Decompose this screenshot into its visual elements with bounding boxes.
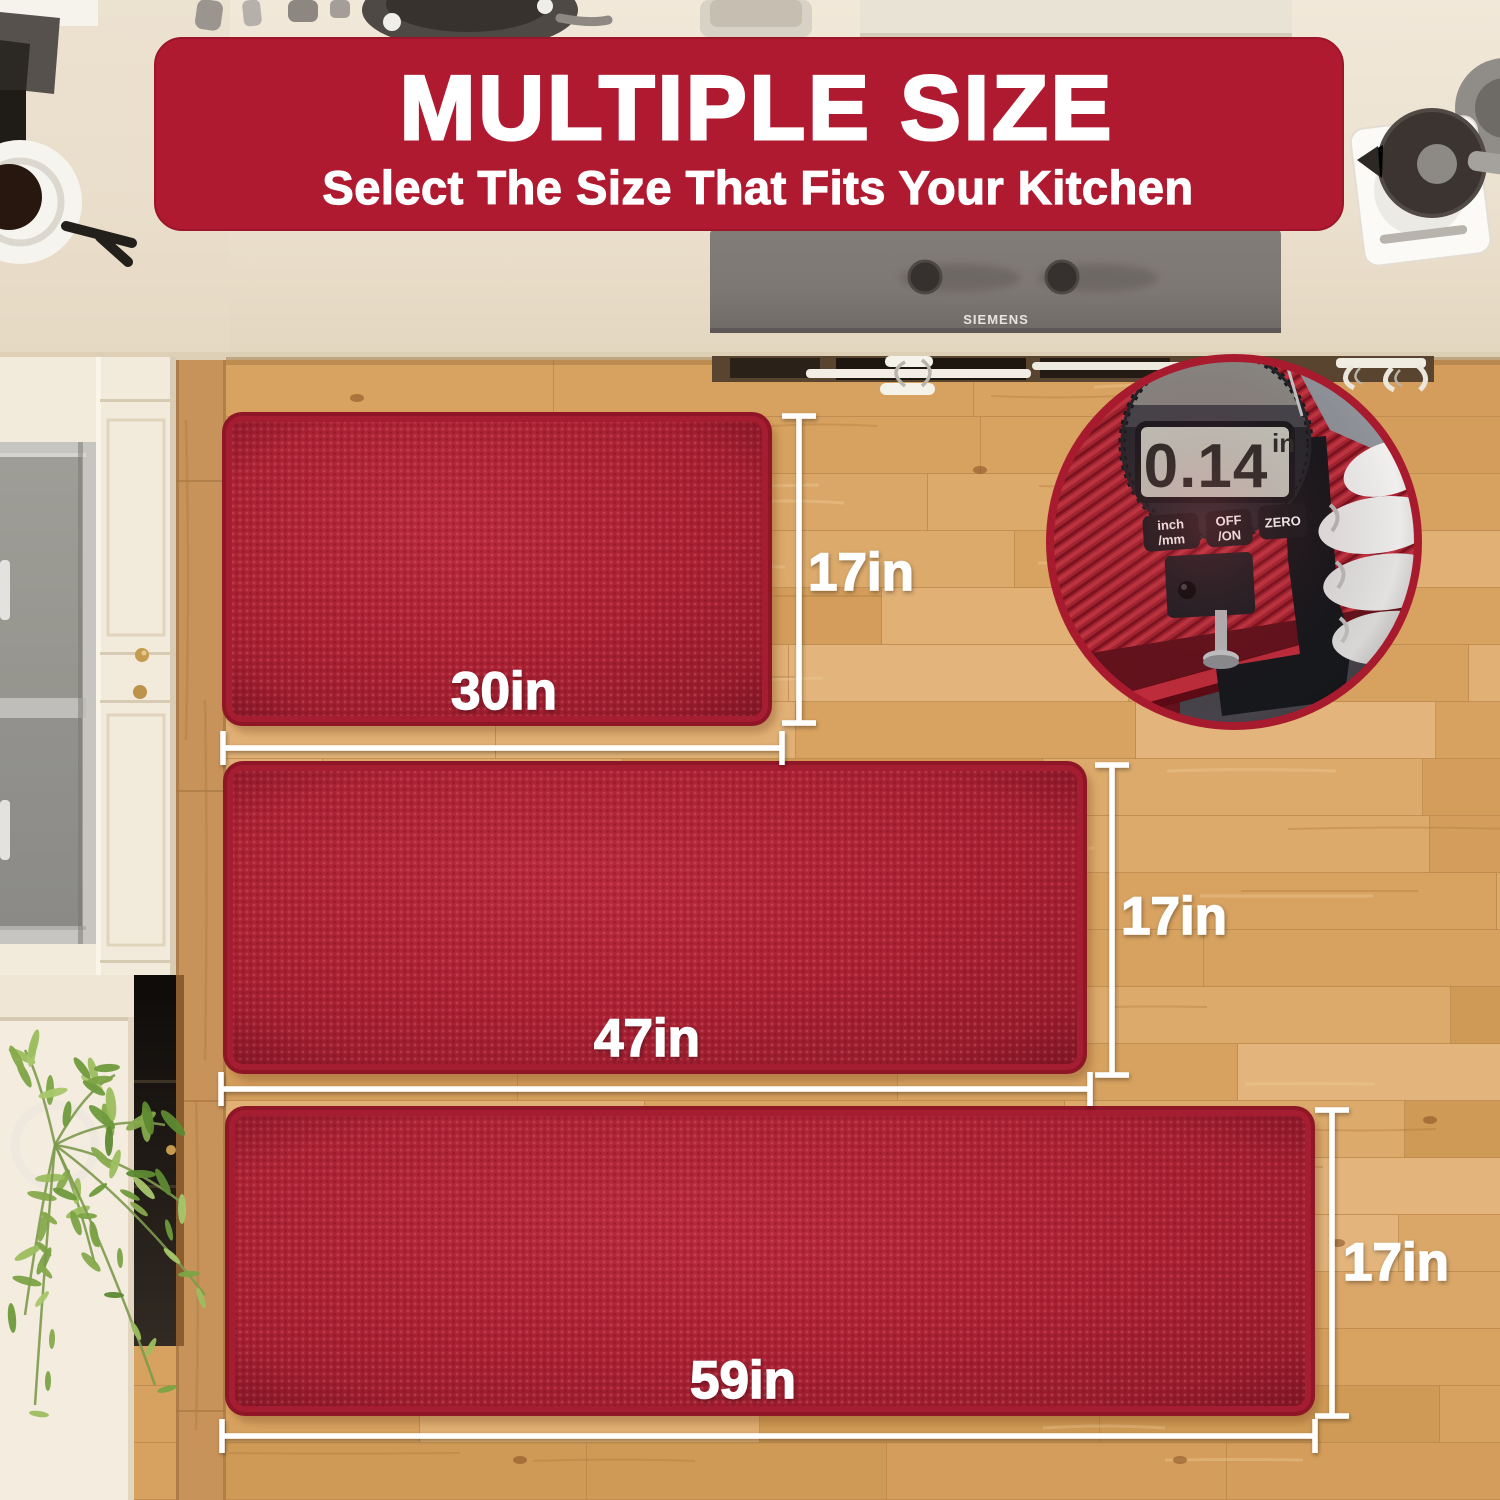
svg-text:30in: 30in [451, 662, 557, 721]
svg-text:17in: 17in [1121, 887, 1227, 946]
svg-text:47in: 47in [594, 1009, 700, 1068]
svg-text:MULTIPLE SIZE: MULTIPLE SIZE [400, 58, 1115, 159]
svg-text:59in: 59in [690, 1351, 796, 1410]
svg-text:Select The Size That Fits Your: Select The Size That Fits Your Kitchen [322, 161, 1193, 214]
svg-text:SIEMENS: SIEMENS [963, 312, 1029, 327]
svg-text:17in: 17in [808, 543, 914, 602]
svg-text:17in: 17in [1343, 1233, 1449, 1292]
